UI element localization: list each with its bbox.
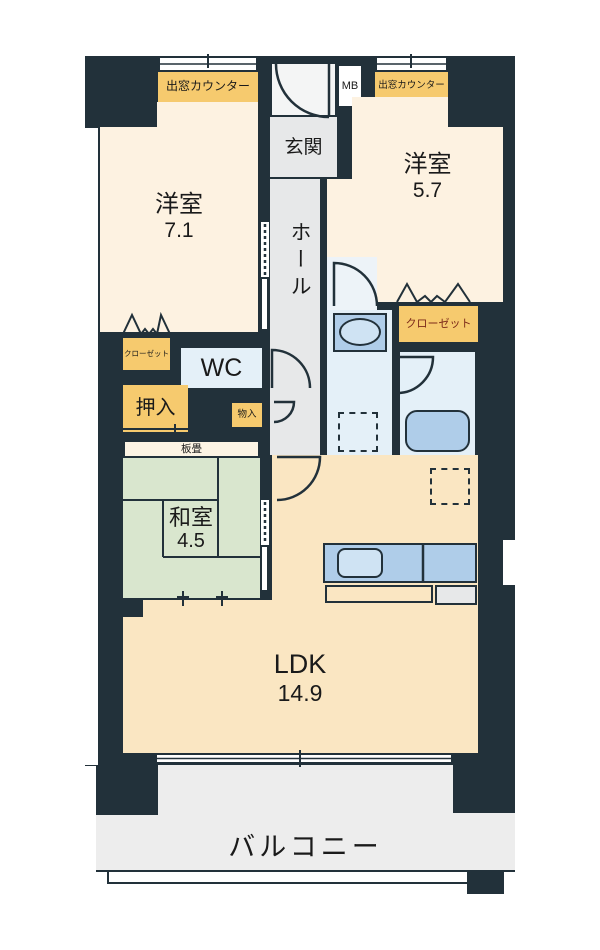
- refrigerator-space: [430, 468, 470, 505]
- bay-counter-right-label: 出窓カウンター: [378, 81, 445, 92]
- hall-label: ホール: [284, 221, 314, 302]
- sliding-door-room1-panel: [260, 277, 269, 331]
- wc: WC: [181, 348, 262, 388]
- room1-label: 洋室: [155, 191, 203, 219]
- entry-porch: [272, 64, 335, 117]
- ldk-balcony-window: [155, 753, 453, 764]
- ldk-size: 14.9: [278, 680, 323, 706]
- bathtub: [405, 410, 470, 452]
- hall: ホール: [270, 179, 320, 455]
- closet-left: クローゼット: [123, 338, 170, 370]
- genkan-label: 玄関: [284, 137, 322, 159]
- washitsu-label: 和室: [169, 505, 213, 530]
- room1-size: 7.1: [164, 219, 193, 243]
- room-washitsu: 和室 4.5: [123, 458, 260, 598]
- bay-window-left: [158, 56, 258, 72]
- ldk-label-group: LDK 14.9: [240, 645, 360, 711]
- bay-window-right: [375, 56, 448, 72]
- closet-right: クローゼット: [399, 306, 478, 342]
- bay-counter-left: 出窓カウンター: [158, 72, 258, 102]
- bay-counter-left-label: 出窓カウンター: [166, 80, 250, 94]
- kitchen-sink: [337, 548, 383, 578]
- meter-box-label: MB: [342, 80, 359, 92]
- sliding-door-washitsu-track: [261, 500, 269, 545]
- exterior-left-notch: [85, 128, 98, 765]
- kitchen-lower-cabinet: [325, 585, 433, 603]
- kitchen-side-box: [435, 585, 477, 605]
- balcony-corner-block: [467, 870, 504, 894]
- exterior-right-notch: [503, 540, 515, 585]
- ldk-floor-under-washitsu: [143, 600, 272, 617]
- floor-plan: 出窓カウンター 出窓カウンター 洋室 7.1 玄関 MB 洋室 5.7 ホール …: [0, 0, 600, 950]
- sliding-door-washitsu-panel: [260, 545, 269, 592]
- balcony-pillar-left: [96, 765, 158, 815]
- wc-label: WC: [201, 354, 243, 383]
- pillar-top-right: [448, 56, 515, 127]
- ldk-label: LDK: [274, 649, 327, 680]
- room-western-7-1: 洋室 7.1: [100, 102, 258, 332]
- balcony-pillar-right: [453, 765, 515, 813]
- washroom-vestibule: [327, 257, 377, 310]
- room2-label: 洋室: [404, 151, 452, 179]
- washitsu-size: 4.5: [177, 530, 205, 553]
- room2-size: 5.7: [413, 179, 442, 203]
- monoire-label: 物入: [237, 410, 256, 421]
- monoire: 物入: [232, 403, 262, 427]
- sliding-door-room1-track: [261, 222, 269, 277]
- itatami-strip: 板畳: [123, 440, 260, 458]
- wash-basin-bowl: [339, 318, 381, 346]
- itatami-label: 板畳: [181, 443, 202, 455]
- oshiire-label: 押入: [136, 397, 176, 420]
- genkan: 玄関: [270, 117, 337, 179]
- washing-machine-space: [338, 412, 378, 452]
- closet-left-label: クローゼット: [124, 350, 169, 359]
- bay-counter-right: 出窓カウンター: [375, 72, 448, 100]
- oshiire: 押入: [123, 385, 188, 432]
- pillar-top-left: [85, 56, 157, 127]
- room2-entry-strip: [327, 179, 352, 257]
- closet-right-label: クローゼット: [406, 318, 472, 331]
